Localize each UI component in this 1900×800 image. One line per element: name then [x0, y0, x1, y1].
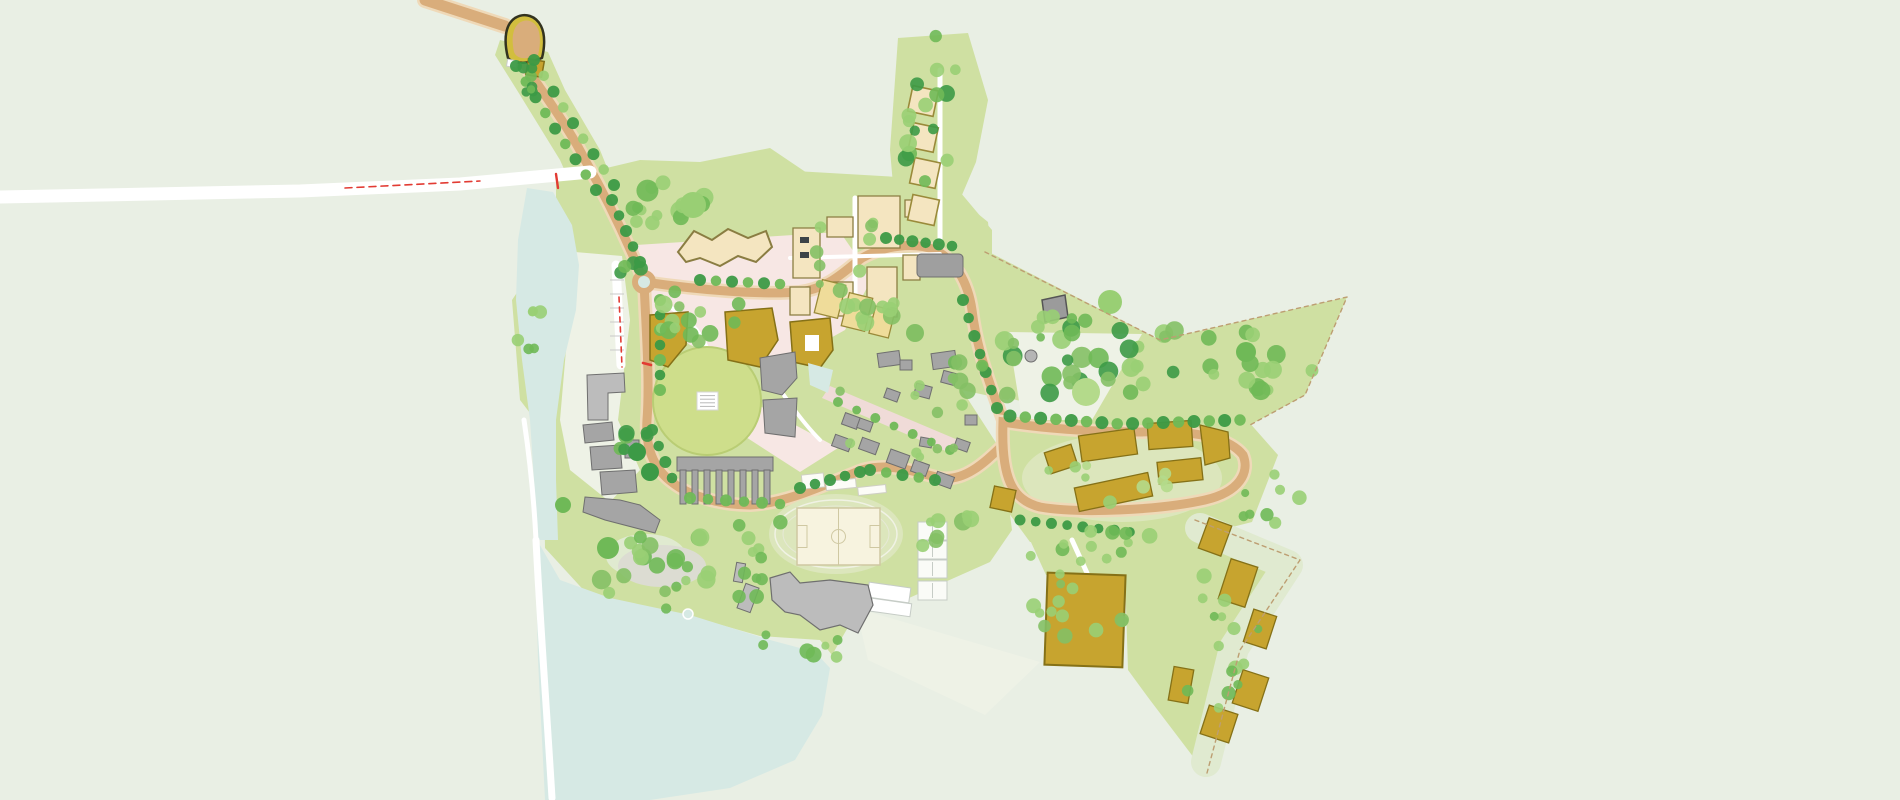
tree: [529, 344, 539, 354]
street-tree: [1065, 414, 1078, 427]
round-tank: [1025, 350, 1037, 362]
tree: [659, 586, 671, 598]
tree: [1238, 659, 1249, 670]
street-tree: [870, 413, 880, 423]
tree: [1067, 583, 1079, 595]
tree: [1102, 554, 1112, 564]
tree: [910, 391, 919, 400]
specimen-tree-5: [597, 537, 619, 559]
street-tree: [1081, 416, 1092, 427]
tree: [592, 570, 611, 589]
tree: [1159, 330, 1171, 342]
tree: [918, 98, 933, 113]
tree: [742, 531, 756, 545]
street-tree: [894, 234, 905, 245]
tree: [1084, 525, 1097, 538]
tree: [1161, 480, 1173, 492]
tree: [1182, 685, 1194, 697]
tree: [1045, 309, 1060, 324]
street-tree: [608, 179, 620, 191]
village-house-15: [965, 415, 977, 425]
street-tree: [1218, 414, 1231, 427]
street-tree: [743, 277, 754, 288]
tree: [634, 531, 647, 544]
tree: [603, 587, 615, 599]
street-tree: [1015, 515, 1026, 526]
street-tree: [840, 471, 851, 482]
roundabout-pond: [638, 276, 650, 288]
tree: [1052, 595, 1064, 607]
tree: [616, 568, 631, 583]
tree: [831, 651, 843, 663]
masterplan-canvas: [0, 0, 1900, 800]
gray-ne-2: [763, 398, 797, 437]
tree: [1226, 666, 1237, 677]
tree: [641, 429, 654, 442]
tree: [1208, 369, 1219, 380]
tree: [1142, 528, 1158, 544]
street-tree: [659, 456, 671, 468]
tree: [1136, 480, 1150, 494]
street-tree: [1126, 417, 1139, 430]
street-tree: [1173, 416, 1184, 427]
street-tree: [1187, 415, 1200, 428]
street-tree: [975, 349, 986, 360]
tree: [1076, 556, 1086, 566]
tree: [929, 87, 944, 102]
cream-block-2: [827, 217, 853, 237]
street-tree: [570, 153, 582, 165]
tree: [755, 552, 767, 564]
street-tree: [560, 139, 571, 150]
tree: [999, 387, 1016, 404]
tree: [1006, 351, 1021, 366]
tree: [758, 640, 768, 650]
street-tree: [614, 210, 625, 221]
tree: [1056, 580, 1065, 589]
street-tree: [947, 241, 958, 252]
tree: [694, 306, 706, 318]
tree: [930, 63, 944, 77]
tree: [1046, 606, 1056, 616]
tree: [910, 77, 924, 91]
tree: [1119, 527, 1132, 540]
tree: [1116, 547, 1127, 558]
gray-cluster-c: [600, 470, 637, 495]
street-tree: [739, 496, 750, 507]
carpark-slab: [917, 254, 963, 277]
tree: [833, 635, 843, 645]
tree: [956, 399, 968, 411]
tree: [1201, 330, 1217, 346]
tree: [857, 314, 875, 332]
street-tree: [547, 86, 559, 98]
tree: [932, 407, 943, 418]
tree: [671, 582, 681, 592]
cream-window-2: [800, 252, 809, 258]
tree: [773, 515, 787, 529]
street-tree: [1046, 518, 1057, 529]
tree: [1008, 338, 1019, 349]
specimen-tree-2: [1072, 378, 1100, 406]
tree: [1292, 490, 1307, 505]
tree: [668, 285, 681, 298]
tree: [738, 567, 751, 580]
tree: [1210, 612, 1219, 621]
street-tree: [1004, 410, 1017, 423]
tree: [1112, 322, 1129, 339]
tree: [761, 630, 770, 639]
tree: [1103, 495, 1117, 509]
tree: [839, 298, 855, 314]
tree: [683, 327, 699, 343]
tree: [928, 124, 939, 135]
village-house-4: [877, 351, 901, 368]
specimen-tree-4: [1236, 342, 1256, 362]
tree: [1275, 485, 1285, 495]
tree: [1035, 608, 1045, 618]
street-tree: [684, 492, 696, 504]
tree: [645, 216, 659, 230]
tree: [1062, 364, 1081, 383]
campus-masterplan-map: [0, 0, 1900, 800]
tree: [732, 297, 746, 311]
tree: [1245, 327, 1260, 342]
street-tree: [794, 482, 806, 494]
tree: [853, 264, 866, 277]
tree: [636, 180, 658, 202]
tree: [512, 334, 524, 346]
street-tree: [538, 71, 549, 82]
street-tree: [908, 429, 918, 439]
tree: [1120, 339, 1139, 358]
tree: [1038, 620, 1051, 633]
tree: [926, 517, 935, 526]
specimen-tree-9: [555, 497, 571, 513]
tree: [682, 561, 693, 572]
tree: [933, 444, 943, 454]
street-tree: [549, 123, 561, 135]
street-tree: [775, 499, 786, 510]
street-tree: [628, 241, 639, 252]
tree: [1101, 372, 1116, 387]
street-tree: [598, 164, 609, 175]
tree: [618, 260, 631, 273]
tree: [661, 603, 671, 613]
street-tree: [1062, 520, 1072, 530]
tree: [1042, 366, 1062, 386]
street-tree: [1234, 414, 1245, 425]
loop-block-pie: [1200, 425, 1230, 465]
village-house-5: [900, 360, 912, 370]
tree: [898, 150, 914, 166]
cricket-oval-pavilion: [697, 392, 718, 410]
tree: [1082, 461, 1091, 470]
tree: [1269, 469, 1279, 479]
tree: [1078, 314, 1092, 328]
tree: [1070, 461, 1081, 472]
tree: [882, 302, 897, 317]
tree: [1067, 313, 1078, 324]
tree: [528, 307, 537, 316]
street-tree: [1095, 416, 1108, 429]
street-tree: [655, 370, 666, 381]
tree: [1040, 384, 1059, 403]
street-tree: [854, 466, 866, 478]
street-tree: [991, 402, 1003, 414]
street-tree: [957, 294, 969, 306]
great-hall-cream: [678, 229, 772, 266]
tree: [633, 549, 649, 565]
tree: [951, 354, 967, 370]
tree: [1086, 541, 1097, 552]
tree: [1196, 568, 1211, 583]
tree: [928, 533, 943, 548]
tree: [799, 643, 814, 658]
street-tree: [864, 464, 876, 476]
street-tree: [653, 441, 664, 452]
tree: [618, 425, 634, 441]
tree: [674, 301, 685, 312]
specimen-tree-7: [641, 463, 659, 481]
tree: [810, 245, 824, 259]
tree: [691, 528, 709, 546]
tree: [949, 444, 958, 453]
tree: [859, 298, 876, 315]
tree: [814, 260, 826, 272]
specimen-tree-1: [680, 192, 706, 218]
street-tree: [756, 497, 768, 509]
street-tree: [913, 472, 924, 483]
street-tree: [667, 473, 678, 484]
tree: [863, 233, 876, 246]
tree: [815, 221, 827, 233]
street-tree: [758, 277, 770, 289]
street-tree: [654, 354, 666, 366]
tree: [845, 438, 855, 448]
tree: [632, 202, 643, 213]
tree: [930, 30, 942, 42]
street-tree: [711, 276, 722, 287]
tree: [1081, 473, 1089, 481]
tree: [915, 452, 924, 461]
tree: [728, 316, 740, 328]
tree: [865, 219, 878, 232]
tree: [1214, 641, 1224, 651]
tree: [1198, 593, 1208, 603]
tree: [1233, 680, 1242, 689]
tree: [1122, 358, 1141, 377]
tree: [1167, 366, 1180, 379]
tree: [1159, 468, 1171, 480]
street-tree: [590, 184, 602, 196]
tree: [959, 383, 975, 399]
street-tree: [694, 274, 706, 286]
street-tree: [654, 384, 666, 396]
tree: [916, 539, 929, 552]
street-tree: [963, 313, 974, 324]
street-tree: [929, 474, 941, 486]
street-tree: [986, 385, 997, 396]
tree: [963, 511, 980, 528]
tree: [950, 64, 961, 75]
tree: [903, 115, 915, 127]
street-tree: [1031, 517, 1041, 527]
tree: [976, 360, 988, 372]
tree: [681, 576, 691, 586]
street-tree: [852, 406, 861, 415]
loop-block-3: [1147, 420, 1193, 449]
tree: [1105, 525, 1119, 539]
gateway-teardrop-road: [513, 21, 540, 59]
street-tree: [1204, 415, 1215, 426]
street-tree: [587, 148, 599, 160]
tree: [630, 215, 643, 228]
street-tree: [897, 469, 909, 481]
street-tree: [890, 422, 899, 431]
street-tree: [567, 117, 579, 129]
tree: [833, 283, 848, 298]
tree: [1044, 466, 1053, 475]
cream-block-8: [790, 287, 810, 315]
street-tree: [540, 108, 551, 119]
ochre-courtyard-void: [805, 335, 819, 351]
street-tree: [824, 474, 836, 486]
street-tree: [620, 225, 632, 237]
tree: [1036, 333, 1045, 342]
specimen-tree-8: [906, 324, 924, 342]
tree: [752, 573, 762, 583]
tree: [816, 280, 824, 288]
tree: [670, 323, 681, 334]
comb-building-wing-6: [752, 470, 758, 504]
street-tree: [655, 340, 666, 351]
street-tree: [968, 330, 980, 342]
tree: [749, 589, 764, 604]
tree: [910, 125, 920, 135]
finger-square-4: [908, 194, 940, 225]
tree: [1214, 703, 1224, 713]
street-tree: [606, 194, 618, 206]
street-tree: [1142, 417, 1153, 428]
street-tree: [906, 235, 918, 247]
tree: [941, 154, 954, 167]
tree: [1123, 384, 1138, 399]
tree: [1306, 364, 1319, 377]
tree: [656, 175, 671, 190]
tree: [655, 295, 673, 313]
street-tree: [1034, 412, 1047, 425]
street-tree: [1050, 414, 1061, 425]
tree: [1055, 569, 1064, 578]
tree: [1264, 361, 1282, 379]
street-tree: [703, 494, 714, 505]
street-tree: [810, 479, 821, 490]
tree: [821, 642, 829, 650]
street-tree: [578, 133, 589, 144]
tree: [1260, 508, 1273, 521]
gray-cluster-a: [583, 422, 614, 443]
tree: [1245, 509, 1254, 518]
tree: [1267, 345, 1286, 364]
street-tree: [881, 467, 892, 478]
specimen-tree-6: [628, 443, 646, 461]
street-tree: [880, 232, 892, 244]
tree: [1031, 320, 1045, 334]
tree: [732, 590, 745, 603]
street-tree: [1111, 418, 1122, 429]
tree: [899, 134, 917, 152]
tree: [527, 85, 535, 93]
street-tree: [775, 279, 786, 290]
street-tree: [720, 494, 732, 506]
tree: [1251, 381, 1270, 400]
tree: [835, 386, 844, 395]
tree: [1057, 628, 1072, 643]
tree: [1062, 354, 1073, 365]
tree: [1241, 489, 1249, 497]
tree: [733, 519, 746, 532]
tree: [701, 566, 717, 582]
tree: [1218, 594, 1231, 607]
street-tree: [558, 102, 569, 113]
tree: [1136, 377, 1151, 392]
tree: [1064, 325, 1081, 342]
tree: [681, 312, 697, 328]
tree: [667, 553, 683, 569]
street-tree: [920, 238, 931, 249]
street-tree: [726, 276, 738, 288]
street-tree: [833, 397, 843, 407]
cream-window-1: [800, 237, 809, 243]
street-tree: [1020, 411, 1031, 422]
tree: [914, 380, 925, 391]
tree: [1227, 622, 1240, 635]
street-tree: [933, 238, 945, 250]
tree: [1059, 539, 1068, 548]
tree: [919, 175, 931, 187]
pond-small: [683, 609, 693, 619]
ochre-square-sports: [990, 486, 1016, 512]
tree: [527, 63, 537, 73]
comb-building-bar: [677, 457, 773, 471]
street-tree: [580, 169, 591, 180]
street-tree: [1157, 416, 1170, 429]
tree: [1089, 623, 1104, 638]
tree: [1117, 616, 1128, 627]
tree: [1056, 609, 1069, 622]
big-shed: [1044, 573, 1125, 668]
tree: [1026, 551, 1036, 561]
